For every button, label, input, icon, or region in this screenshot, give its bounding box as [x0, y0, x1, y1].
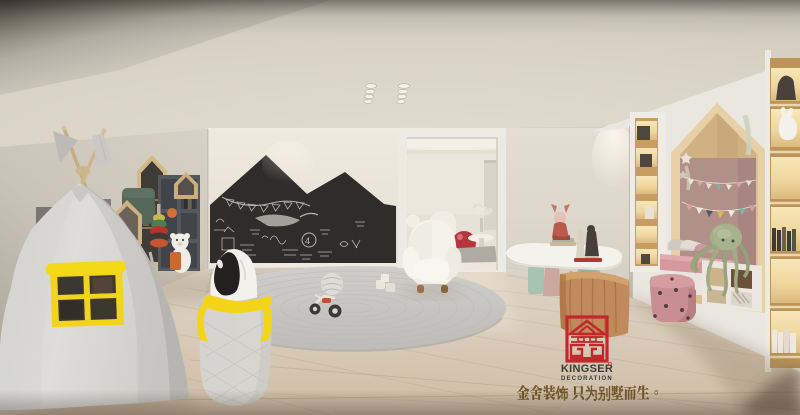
svg-text:4: 4	[305, 236, 310, 246]
svg-text:KINGSER: KINGSER	[561, 363, 613, 375]
svg-text:DECORATION: DECORATION	[561, 376, 613, 382]
